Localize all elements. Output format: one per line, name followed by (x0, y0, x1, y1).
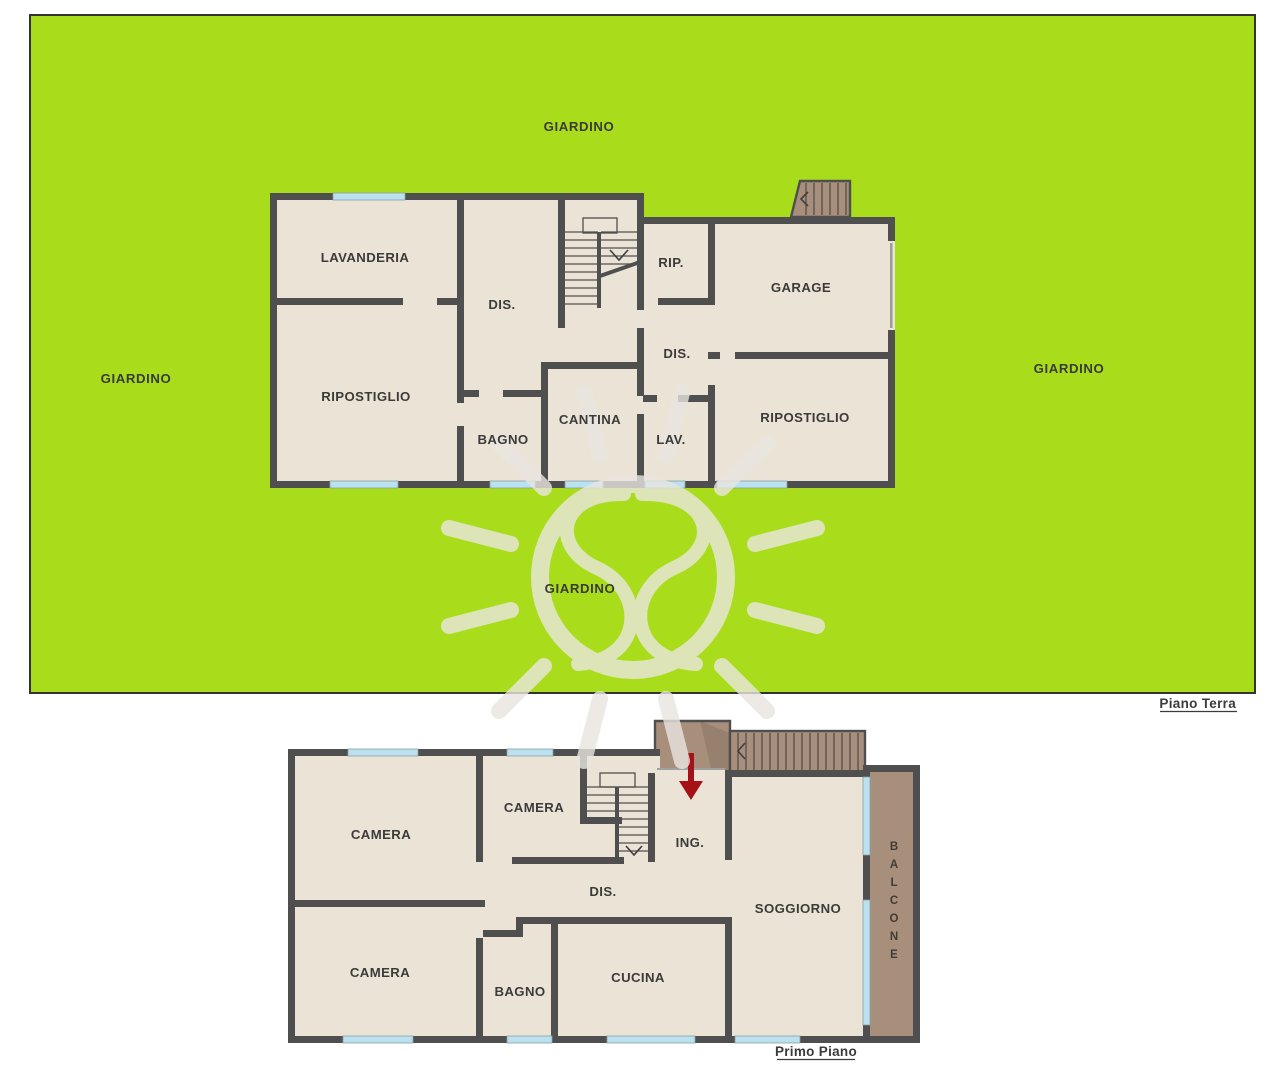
room-label-bagno-ground: BAGNO (477, 432, 528, 447)
first-floor-title: Primo Piano (775, 1044, 857, 1059)
room-label-rip: RIP. (658, 255, 684, 270)
garden-label-right: GIARDINO (1034, 361, 1105, 376)
ground-floor-plan (270, 181, 895, 488)
exterior-stairs-ground (791, 181, 850, 217)
room-label-camera-top-left: CAMERA (351, 827, 411, 842)
first-floor-footprint (288, 749, 870, 1043)
room-label-ripostiglio-right: RIPOSTIGLIO (760, 410, 849, 425)
garage-door-opening (890, 243, 893, 328)
garden-label-top: GIARDINO (544, 119, 615, 134)
room-label-ing: ING. (676, 835, 705, 850)
room-label-lav: LAV. (656, 432, 685, 447)
room-label-camera-top-middle: CAMERA (504, 800, 564, 815)
room-label-lavanderia: LAVANDERIA (321, 250, 410, 265)
ground-floor-footprint (270, 193, 895, 488)
room-label-dis-first: DIS. (589, 884, 616, 899)
garden-label-left: GIARDINO (101, 371, 172, 386)
room-label-camera-bottom-left: CAMERA (350, 965, 410, 980)
room-label-cucina: CUCINA (611, 970, 665, 985)
exterior-stairs-first (730, 731, 865, 772)
room-label-garage: GARAGE (771, 280, 831, 295)
room-label-cantina: CANTINA (559, 412, 621, 427)
garden-label-bottom: GIARDINO (545, 581, 616, 596)
floorplan-page: GIARDINO GIARDINO GIARDINO GIARDINO LAVA… (0, 0, 1280, 1067)
first-floor-plan (288, 721, 920, 1043)
room-label-dis-right: DIS. (663, 346, 690, 361)
ground-floor-title: Piano Terra (1159, 696, 1236, 711)
room-label-soggiorno: SOGGIORNO (755, 901, 841, 916)
room-label-bagno-first: BAGNO (494, 984, 545, 999)
room-label-ripostiglio-left: RIPOSTIGLIO (321, 389, 410, 404)
room-label-dis-center: DIS. (488, 297, 515, 312)
